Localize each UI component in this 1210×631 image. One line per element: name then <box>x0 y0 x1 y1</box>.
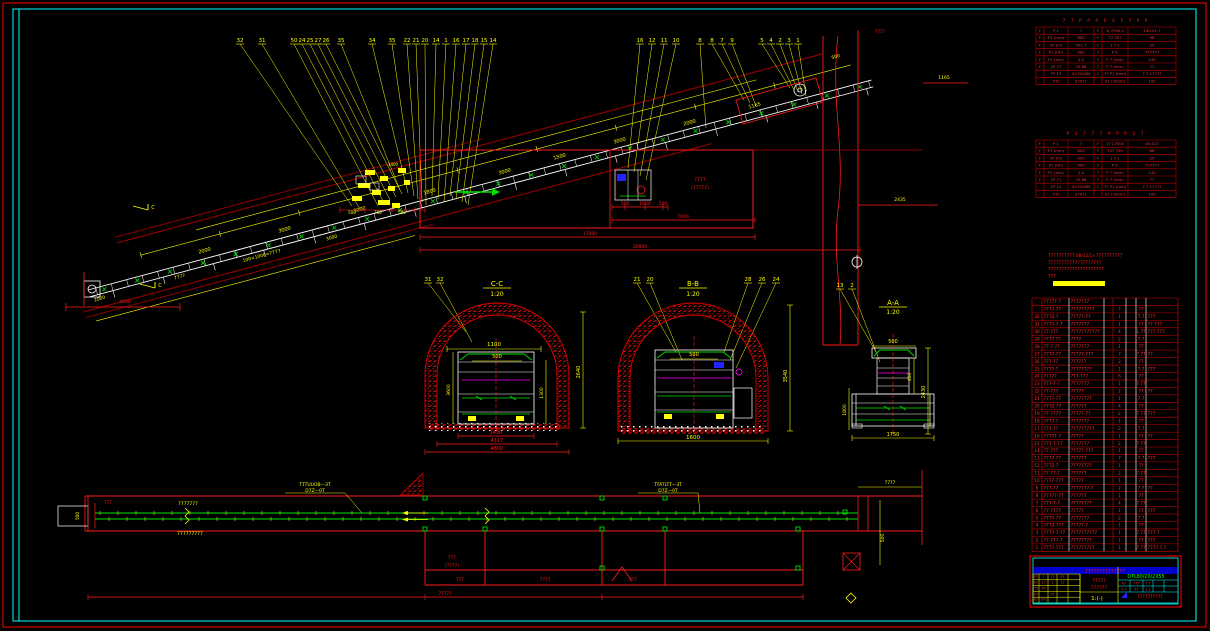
bom-cell: 4 <box>1036 523 1039 528</box>
table-cell: 320 <box>1077 155 1085 160</box>
table-cell: 77 307 <box>1108 35 1122 40</box>
bom-cell: 1 <box>1118 508 1121 513</box>
bom-cell: 1 <box>1118 418 1121 423</box>
bom-cell: 777Z-7 <box>1044 463 1059 468</box>
room-label: 7777 <box>694 177 706 183</box>
bom-cell: 9 <box>1036 485 1039 490</box>
table-cell: 25.88 <box>1076 64 1087 69</box>
table-cell: 777777 <box>1145 50 1160 55</box>
table-cell: F <box>1039 42 1041 47</box>
bom-cell: 2 <box>1118 471 1121 476</box>
titleblock-scale: 1:(-) <box>1091 596 1103 602</box>
callout-number: 11 <box>661 38 668 44</box>
bom-cell: 77 <box>1138 493 1144 498</box>
dimension-label: 2000 <box>683 118 697 127</box>
cut-mark-label: C <box>158 283 162 289</box>
leg <box>113 291 115 298</box>
bom-cell: 1 <box>1118 344 1121 349</box>
table-cell: 25 <box>1150 42 1155 47</box>
frame-tick <box>281 238 283 245</box>
frame-tick <box>343 222 345 229</box>
takeup-block <box>378 200 390 205</box>
table-cell: 7 <box>1097 64 1100 69</box>
frame-tick <box>513 176 515 183</box>
bom-cell: 777-7-7 <box>1044 500 1061 505</box>
bom-cell: 777 <box>1148 508 1156 513</box>
takeup-block <box>392 203 400 208</box>
dimension-label: 400 <box>907 373 913 382</box>
anchor-square <box>423 496 427 500</box>
incline-line <box>96 236 415 321</box>
table-cell: -T71 <box>1052 191 1061 196</box>
table-cell: 7 7 17777 <box>1142 71 1162 76</box>
section-title: B-B <box>687 280 699 288</box>
callout-number: 24 <box>773 277 780 283</box>
bom-cell: 7777777 <box>1071 299 1090 304</box>
titleblock-cell: 777 <box>1133 582 1139 586</box>
table-cell: 777777 <box>1145 163 1160 168</box>
bom-cell: 7777777 <box>1071 418 1090 423</box>
bom-cell: 7777777 <box>1071 344 1090 349</box>
frame-tick <box>590 155 592 162</box>
bom-cell: 777-77 <box>1044 485 1059 490</box>
rect <box>664 414 672 419</box>
bom-cell: 2 <box>1118 389 1121 394</box>
dimension-label-red: 30000 <box>633 244 647 250</box>
table-cell: 7 <box>1097 170 1100 175</box>
frame-tick <box>559 164 561 171</box>
frame-tick <box>838 89 840 96</box>
callout-number: 7 <box>720 38 724 44</box>
bom-cell: 7.7 <box>1138 515 1145 520</box>
table-cell: F <box>1039 28 1041 33</box>
bom-cell: 77777 <box>1071 433 1085 438</box>
frame-tick <box>699 126 701 133</box>
table-cell: F <box>1039 57 1041 62</box>
frame-tick <box>188 263 190 270</box>
bom-cell: 31 <box>1034 322 1040 327</box>
titleblock-cell: 7P <box>1041 587 1045 591</box>
bom-cell: 7.77 <box>1136 351 1146 356</box>
callout-leader <box>634 44 652 172</box>
callout-leader <box>294 44 378 206</box>
frame-tick <box>544 168 546 175</box>
dimension-label-red: 1430 <box>490 430 503 436</box>
bom-cell: 77-7-77 <box>1044 344 1061 349</box>
dimension-label: 3000 <box>325 234 338 243</box>
rect <box>58 506 88 526</box>
takeup-block <box>372 190 381 195</box>
bom-cell: 777777 <box>1071 493 1087 498</box>
table-cell: F <box>1097 155 1099 160</box>
bom-cell: 4 <box>1118 329 1121 334</box>
bom-cell: 77 <box>1148 351 1154 356</box>
bom-cell: 7 <box>1036 500 1039 505</box>
stamp-triangle <box>1121 592 1127 598</box>
dimension-label: 1800 <box>842 404 848 416</box>
callout-number: 35 <box>338 38 345 44</box>
callout-leader <box>432 44 436 196</box>
section-title: C-C <box>491 280 503 288</box>
tunnel-arch <box>425 303 569 428</box>
circle <box>736 369 742 375</box>
bom-cell: 77 <box>1138 418 1144 423</box>
frame-tick <box>250 247 252 254</box>
incline-line <box>115 139 482 237</box>
bom-cell: 77 <box>1148 485 1154 490</box>
titleblock-cell: 7 7 <box>1145 582 1150 586</box>
table-cell: F <box>1039 170 1041 175</box>
table-cell: 77 P1 (mm) <box>1104 184 1127 189</box>
table-cell: 100-01.7 <box>1143 28 1161 33</box>
callout-number: 21 <box>634 277 641 283</box>
section-scale: 1:20 <box>886 309 900 316</box>
callout-number: 14 <box>433 38 440 44</box>
bom-cell: 77 <box>1138 523 1144 528</box>
rect <box>716 414 724 419</box>
bom-cell: 3 <box>1036 530 1039 535</box>
frame-tick <box>297 234 299 241</box>
frame-tick <box>714 122 716 129</box>
bom-cell: 7777-777 <box>1044 478 1064 483</box>
callout-number: 24 <box>299 38 306 44</box>
table-cell: 140 <box>1148 57 1156 62</box>
bom-cell: 777777 <box>1071 471 1087 476</box>
callout-number: 4 <box>769 38 773 44</box>
bom-cell: 23 <box>1034 381 1040 386</box>
bom-cell: 77 <box>1138 359 1144 364</box>
titleblock-cell: P7 <box>1060 575 1064 579</box>
frame-tick <box>668 135 670 142</box>
dimension-label: 1165 <box>938 75 950 81</box>
bom-cell: 77777-77 <box>1071 411 1091 416</box>
table-cell: F <box>1039 148 1041 153</box>
plan-label: 777777777 <box>177 531 203 537</box>
table-cell: 77 <box>1150 177 1155 182</box>
takeup-block <box>352 196 362 201</box>
bom-cell: 77777 <box>1071 389 1085 394</box>
bom-cell: 7.77 <box>1136 545 1146 550</box>
bom-cell: 7777777 <box>1071 322 1090 327</box>
callout-leader <box>407 44 418 199</box>
dimension-label: 500 <box>888 339 898 345</box>
callout-leader <box>438 44 446 199</box>
takeup-block <box>404 180 410 185</box>
bom-cell: 7777-7-7 <box>1044 322 1063 327</box>
table-cell: P1 (t/h) <box>1049 50 1064 55</box>
bom-cell: 77777777 <box>1071 396 1093 401</box>
bom-cell: 77777-77 <box>1071 314 1091 319</box>
dimension-label: 700 <box>374 210 382 215</box>
bom-cell: 77777777777 <box>1071 329 1101 334</box>
callout-number: 16 <box>637 38 644 44</box>
bom-cell: 777777 <box>1071 359 1087 364</box>
anchor-square <box>663 496 667 500</box>
dimension-label-red: 7000 <box>677 214 689 220</box>
label-red: 777 <box>104 500 112 505</box>
dimension-label: 3000 <box>613 136 627 145</box>
bom-cell: 2 <box>1118 336 1121 341</box>
section-scale: 1:20 <box>490 291 504 298</box>
table-cell: 707 700 <box>1107 148 1123 153</box>
bom-cell: 7.7 <box>1138 396 1145 401</box>
frame-tick <box>328 226 330 233</box>
titleblock-model: DTL80/20/2X55 <box>1127 574 1164 580</box>
callout-leader <box>722 44 750 103</box>
frame-tick <box>436 197 438 204</box>
table-cell: 1 <box>1097 184 1100 189</box>
bom-cell: 26 <box>1034 359 1040 364</box>
bom-cell: 6 <box>1036 508 1039 513</box>
table-cell: F <box>1097 148 1099 153</box>
bom-cell: 27 <box>1034 351 1040 356</box>
table-cell: F <box>1039 141 1041 146</box>
callout-number: 10 <box>673 38 680 44</box>
callout-number: 25 <box>307 38 314 44</box>
frame-tick <box>173 267 175 274</box>
bom-cell: 77-7777 <box>1044 508 1062 513</box>
bom-cell: 15 <box>1034 441 1040 446</box>
table-cell: 2×Y200M <box>1072 184 1090 189</box>
line <box>140 284 155 288</box>
bom-cell: 2 <box>1118 441 1121 446</box>
bom-cell: 28 <box>1034 344 1040 349</box>
table-cell: F <box>1039 64 1041 69</box>
anchor-square <box>796 566 800 570</box>
callout-leader <box>310 44 390 200</box>
bom-cell: 7777-77 <box>1044 456 1062 461</box>
incline-line <box>85 225 433 318</box>
rect <box>516 416 524 421</box>
bom-cell: 1 <box>1118 322 1121 327</box>
titleblock-cell: 77 <box>1050 575 1054 579</box>
callout-number: 27 <box>315 38 322 44</box>
bom-cell: 77 <box>1138 322 1144 327</box>
bom-cell: 77777-7 <box>1044 299 1062 304</box>
callout-number: 31 <box>259 38 266 44</box>
frame-tick <box>683 131 685 138</box>
table-cell: P 7 (mm) <box>1106 170 1124 175</box>
bom-cell: 7 <box>1118 351 1121 356</box>
titleblock-name: 77777 <box>1092 578 1106 583</box>
plan-callout: TTTUUOB—3T <box>298 482 331 488</box>
bom-cell: 1 <box>1118 463 1121 468</box>
callout-number: 1 <box>796 38 800 44</box>
dimension-label: 500 <box>75 512 80 520</box>
bom-cell: 77-777 <box>1044 329 1059 334</box>
bom-cell: 7.7 <box>1138 366 1145 371</box>
callout-leader <box>240 44 352 206</box>
dimension-label: 1800 <box>423 187 437 196</box>
leg <box>163 277 165 284</box>
bom-cell: 2 <box>1118 411 1121 416</box>
bom-cell: 77 <box>1148 433 1154 438</box>
table-cell: 7 <box>1097 163 1100 168</box>
table-cell: 21 (7/mm) <box>1105 191 1126 196</box>
bom-cell: 14 <box>1034 448 1040 453</box>
table-cell: 88 <box>1150 148 1155 153</box>
bom-cell: 7.7 <box>1138 336 1145 341</box>
bom-cell: 7777-77 <box>1044 515 1062 520</box>
frame-tick <box>111 284 113 291</box>
bom-cell: 77777-777 <box>1071 448 1094 453</box>
bom-cell: 77 <box>1138 433 1144 438</box>
callout-number: 21 <box>413 38 420 44</box>
bom-cell: 777 <box>1148 314 1156 319</box>
table-cell: 100 <box>1148 191 1156 196</box>
belt-direction-arrow <box>492 188 500 196</box>
bom-cell: 77-77-7 <box>1044 471 1061 476</box>
bom-cell: 77-777 <box>1044 448 1059 453</box>
bom-cell: 1 <box>1118 538 1121 543</box>
frame-tick <box>219 255 221 262</box>
callout-number: 1 <box>444 38 448 44</box>
bom-cell: 7.77 <box>1136 381 1146 386</box>
bom-cell: 777-77 <box>1044 359 1059 364</box>
callout-leader <box>450 44 466 196</box>
bom-cell: 1 <box>1118 530 1121 535</box>
bom-cell: 1 <box>1118 493 1121 498</box>
leg <box>314 237 316 244</box>
table-cell: 1P (°) <box>1051 177 1062 182</box>
dimension-label: 1500 <box>553 152 567 161</box>
bom-cell: 1 <box>1036 545 1039 550</box>
titleblock-cell: 7P7 <box>1040 598 1046 602</box>
callout-leader <box>732 44 756 106</box>
table-cell: 98 <box>1150 35 1155 40</box>
callout-number: 15 <box>481 38 488 44</box>
table-cell: F <box>1039 155 1041 160</box>
dimension-label-red: 17000 <box>583 231 597 237</box>
callout-number: 26 <box>323 38 330 44</box>
plan-callout: TTATLTT—3T <box>653 482 682 488</box>
head-frame <box>872 348 916 358</box>
dimension-label: 500 <box>398 210 406 215</box>
bom-cell: 32 <box>1034 314 1040 319</box>
section-title: A-A <box>887 299 899 307</box>
table-cell: 1P (m) <box>1050 42 1063 47</box>
bom-cell: 12 <box>1034 463 1040 468</box>
frame-tick <box>869 81 871 88</box>
leg <box>666 143 668 150</box>
bom-cell: 29 <box>1034 336 1040 341</box>
callout-number: 14 <box>490 38 497 44</box>
break-mark <box>185 508 189 524</box>
drive-unit-part <box>617 174 626 181</box>
table-cell: P1 (m/s) <box>1048 57 1064 62</box>
leg <box>716 129 718 136</box>
bom-cell: 777-7-7 <box>1044 381 1061 386</box>
callout-number: 26 <box>759 277 766 283</box>
cad-drawing-sheet: 3231502425272635343522212014116171815141… <box>0 0 1210 631</box>
bom-cell: 777 <box>1148 456 1156 461</box>
table-cell: 1 7 1 <box>1110 155 1120 160</box>
titleblock-name: 777777 <box>1091 585 1107 590</box>
bom-cell: 777 7 <box>1148 530 1160 535</box>
dimension-label: 1300 <box>539 387 545 399</box>
table-header-glyphs: 7 7 P P P E 3 7 7 P P <box>1062 18 1149 24</box>
titleblock-serial: 7777777777 <box>1137 594 1163 599</box>
dimension-label-red: 4117 <box>491 438 504 444</box>
bom-cell: 777-7-77 <box>1044 441 1063 446</box>
bom-cell: 777 <box>1148 366 1156 371</box>
callout-number: 17 <box>463 38 470 44</box>
bom-cell: 777 <box>1148 538 1156 543</box>
bom-cell: 77 <box>1138 307 1144 312</box>
callout-leader <box>646 44 676 180</box>
titleblock-cell: P7 <box>1122 582 1126 586</box>
rect <box>714 362 724 368</box>
bom-cell: 77777777 <box>1071 366 1093 371</box>
bom-cell: 2 <box>1118 359 1121 364</box>
dimension-label-red: 7777 <box>540 577 551 582</box>
table-cell: S7071 <box>1075 78 1088 83</box>
bom-cell: 777-77 <box>1044 426 1059 431</box>
table-cell: 77 P1 (mm) <box>1104 71 1127 76</box>
bom-cell: 7777777 <box>1071 441 1090 446</box>
bom-cell: 7.77 <box>1136 500 1146 505</box>
bom-cell: 1 <box>1118 314 1121 319</box>
dimension-label-red: 4800 <box>491 446 504 452</box>
dimension-label: 500 <box>831 53 841 61</box>
titleblock-cell: 1:1 <box>1145 588 1150 592</box>
anchor-square <box>600 527 604 531</box>
bom-cell: 777Z-7 <box>1044 314 1059 319</box>
cut-mark-label: C <box>151 205 155 211</box>
bom-cell: 1 <box>1118 545 1121 550</box>
bom-cell: 77777777 <box>1071 463 1093 468</box>
bom-cell: 77777-7 <box>1071 523 1089 528</box>
table-cell: 7 7 17777 <box>1142 184 1162 189</box>
bom-cell: 77 <box>1148 389 1154 394</box>
dimension-label-red: 4000 <box>119 299 131 305</box>
bom-cell: 77777-7 <box>1044 433 1062 438</box>
table-cell: TP 13 <box>1050 71 1062 76</box>
frame-tick <box>807 97 809 104</box>
callout-number: 34 <box>369 38 376 44</box>
titleblock-cell: 7 <box>1042 575 1044 579</box>
anchor-square <box>600 496 604 500</box>
dimension-label: 7777 <box>885 480 896 485</box>
bom-cell: 77 <box>1138 538 1144 543</box>
leg <box>364 223 366 230</box>
titleblock-cell: 77 <box>1050 592 1054 596</box>
titleblock-cell: P7 <box>1034 575 1038 579</box>
titleblock-cell: 7-7 <box>1121 588 1127 592</box>
bom-cell: 77 <box>1138 508 1144 513</box>
table-cell: 140 <box>1148 170 1156 175</box>
bom-cell: 77 <box>1138 478 1144 483</box>
table-cell: 1 7 1 <box>1110 42 1120 47</box>
dimension-label: 3600 <box>446 384 452 396</box>
dimension-label-red: 777 <box>629 577 637 582</box>
bom-cell: 1 <box>1118 396 1121 401</box>
callout-leader <box>712 44 744 100</box>
table-cell: S7071 <box>1075 191 1088 196</box>
table-cell: 800 <box>1077 35 1085 40</box>
callout-leader <box>444 44 456 202</box>
dimension-label: 2430 <box>921 386 927 399</box>
bom-cell: 777777777 <box>1071 545 1095 550</box>
bom-cell: 77 <box>1138 374 1144 379</box>
bom-cell: 77777777 <box>1071 538 1093 543</box>
table-cell: F <box>1097 35 1099 40</box>
highlight-bar <box>1053 281 1105 286</box>
bom-cell: 77 777 <box>1148 322 1163 327</box>
anchor-square <box>483 527 487 531</box>
incline-line <box>141 65 851 255</box>
bom-cell: 777Z-777 <box>1044 523 1065 528</box>
